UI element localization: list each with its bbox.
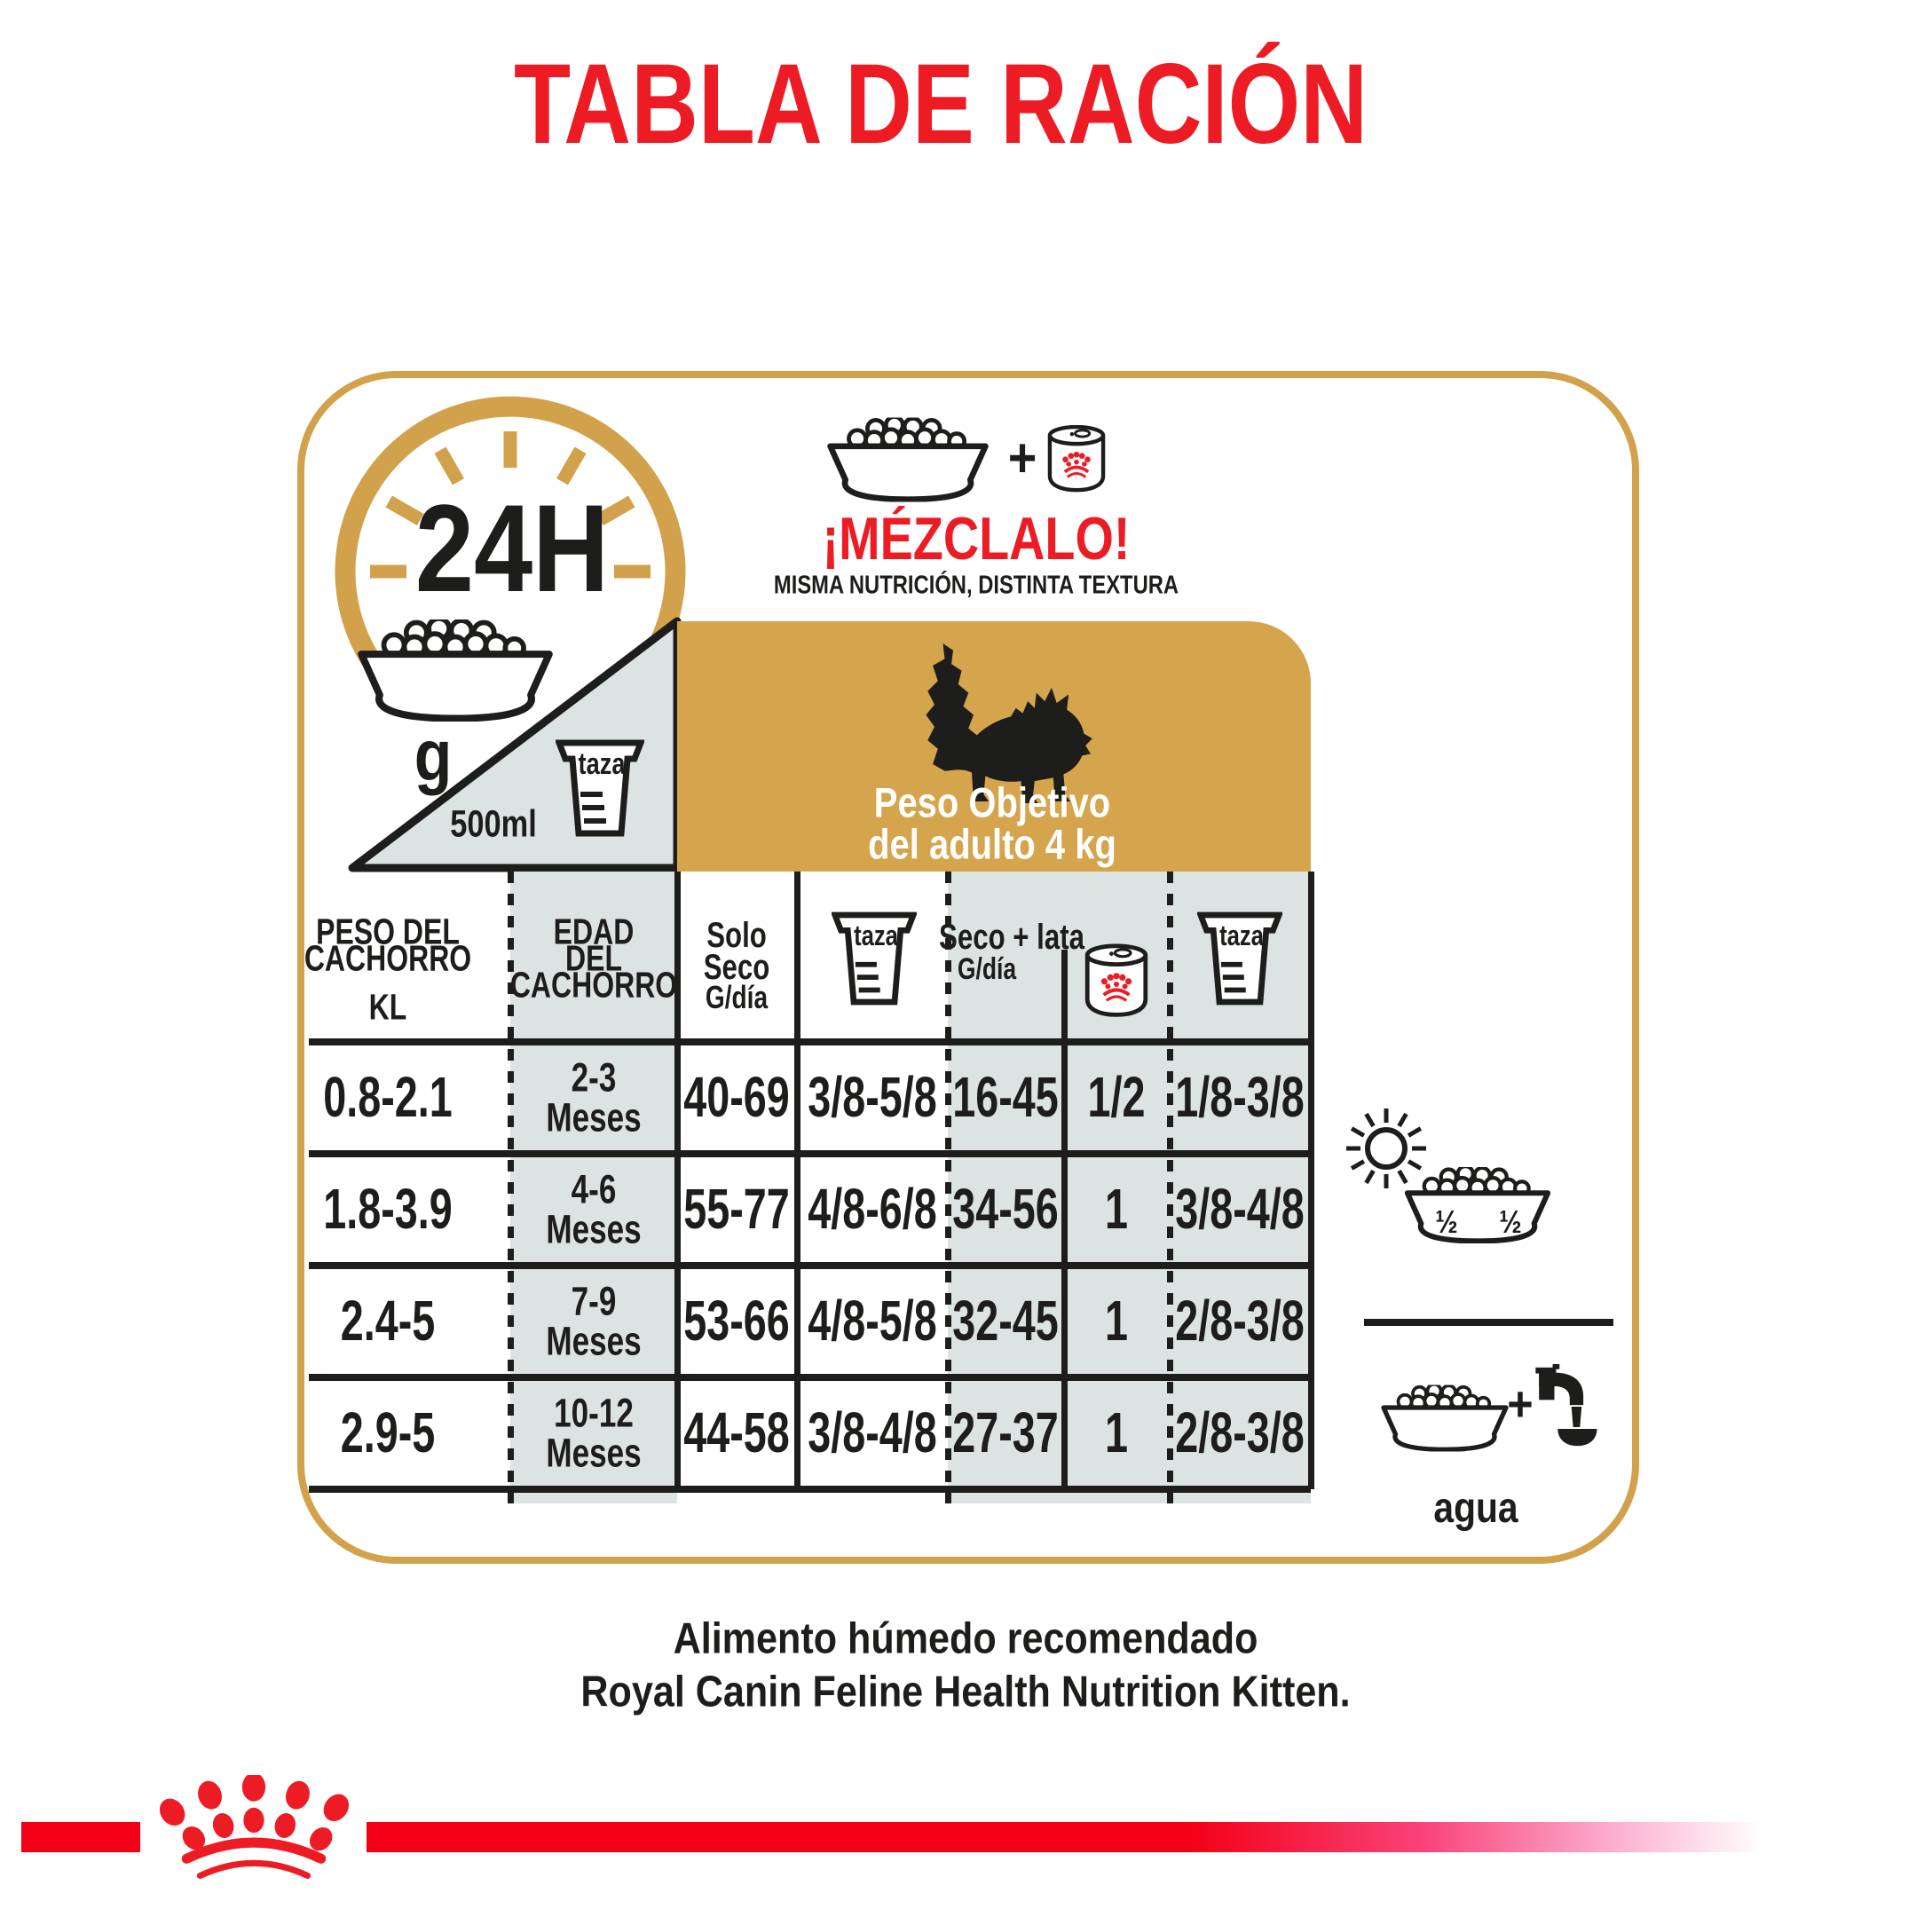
half-half-bowl-icon xyxy=(1401,1164,1554,1246)
measuring-cup-label: taza xyxy=(572,749,631,779)
mix-headline: ¡MÉZCLALO! xyxy=(788,509,1163,569)
plus-icon: + xyxy=(1006,431,1038,486)
water-tap-icon xyxy=(1528,1364,1601,1449)
red-bar-left xyxy=(21,1822,140,1852)
cell-peso: 2.9-5 xyxy=(323,1404,453,1461)
cell-lata: 1 xyxy=(1100,1404,1132,1461)
royal-canin-crown-logo xyxy=(160,1775,353,1883)
food-can-icon xyxy=(1047,423,1106,494)
table-row-divider xyxy=(309,1262,1311,1269)
cell-edad-line2: Meses xyxy=(532,1098,655,1138)
cell-edad-line1: 4-6 xyxy=(564,1170,622,1210)
measuring-cup-label: taza xyxy=(848,921,903,950)
footer-line1: Alimento húmedo recomendado xyxy=(634,1618,1298,1661)
moon-icon xyxy=(1547,1124,1593,1179)
cell-seco-lata: 27-37 xyxy=(933,1404,1078,1461)
food-can-icon xyxy=(1084,943,1148,1019)
header-edad-line3: CACHORRO xyxy=(486,967,700,1004)
cell-seco-lata: 32-45 xyxy=(933,1292,1078,1349)
table-row-divider xyxy=(309,1150,1311,1157)
header-peso-line2: CACHORRO xyxy=(280,941,494,977)
header-seco-lata-line1: Seco + lata xyxy=(919,919,1105,955)
header-solo-seco-line3: G/día xyxy=(697,982,777,1014)
header-peso-line3: KL xyxy=(364,990,413,1026)
ration-table-infographic: TABLA DE RACIÓN 24H g taza 500ml + xyxy=(0,0,1932,1925)
kibble-bowl-icon xyxy=(824,417,992,502)
cell-edad-line1: 2-3 xyxy=(564,1058,622,1098)
cell-edad-line1: 7-9 xyxy=(564,1282,622,1321)
cell-peso: 0.8-2.1 xyxy=(299,1069,476,1125)
half-portion-left: ½ xyxy=(1433,1206,1460,1238)
half-portion-right: ½ xyxy=(1497,1206,1524,1238)
cell-seco-lata: 16-45 xyxy=(933,1069,1078,1125)
clock-24h-label: 24H xyxy=(398,486,627,611)
target-weight-line1: Peso Objetivo xyxy=(853,782,1131,824)
red-bar-right xyxy=(367,1822,1835,1852)
cell-edad-line1: 10-12 xyxy=(542,1393,644,1433)
mix-subheadline: MISMA NUTRICIÓN, DISTINTA TEXTURA xyxy=(729,573,1223,599)
cell-taza-mixto: 1/8-3/8 xyxy=(1151,1069,1328,1125)
page-title: TABLA DE RACIÓN xyxy=(420,48,1461,162)
measuring-cup-label: taza xyxy=(1214,921,1269,950)
cell-seco-lata: 34-56 xyxy=(933,1180,1078,1237)
cell-edad-line2: Meses xyxy=(532,1321,655,1361)
table-row-divider xyxy=(309,1374,1311,1381)
side-divider-line xyxy=(1364,1319,1613,1326)
cell-lata: 1/2 xyxy=(1077,1069,1156,1125)
header-seco-lata-line2: G/día xyxy=(949,954,1024,984)
cell-peso: 2.4-5 xyxy=(323,1292,453,1349)
cell-taza-mixto: 2/8-3/8 xyxy=(1151,1292,1328,1349)
target-weight-line2: del adulto 4 kg xyxy=(846,824,1138,865)
kibble-bowl-icon xyxy=(1378,1384,1511,1453)
table-row-divider xyxy=(309,1038,1311,1045)
cell-taza-mixto: 2/8-3/8 xyxy=(1151,1404,1328,1461)
table-bottom-border xyxy=(309,1486,1311,1493)
cell-lata: 1 xyxy=(1100,1180,1132,1237)
cell-lata: 1 xyxy=(1100,1292,1132,1349)
cell-edad-line2: Meses xyxy=(532,1210,655,1250)
cell-peso: 1.8-3.9 xyxy=(299,1180,476,1237)
footer-line2: Royal Canin Feline Health Nutrition Kitt… xyxy=(528,1671,1403,1715)
cup-volume-label: 500ml xyxy=(439,806,548,844)
water-label: agua xyxy=(1426,1487,1526,1530)
cell-edad-line2: Meses xyxy=(532,1433,655,1473)
cell-taza-mixto: 3/8-4/8 xyxy=(1151,1180,1328,1237)
